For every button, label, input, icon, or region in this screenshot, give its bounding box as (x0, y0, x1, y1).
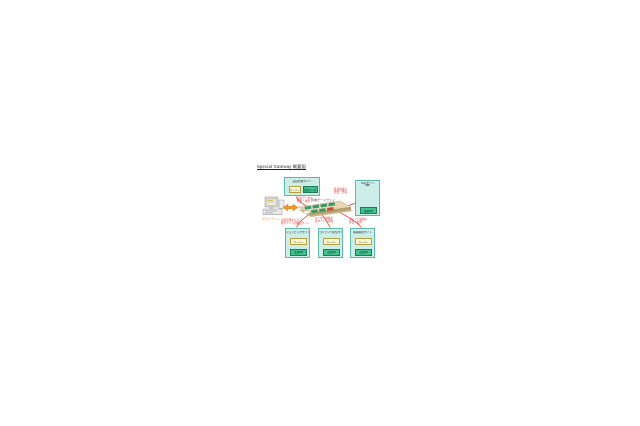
annotation-to-site2: ユーザー情報を 各サイトへ通知 (315, 217, 333, 223)
top-box-data: 認証データ (303, 186, 318, 193)
bottom-box-3-server: サーバー (355, 238, 372, 245)
bottom-box-1-title: ショッピングサイト (286, 231, 309, 234)
bottom-box-3-title: 情報提供サイト (351, 231, 374, 234)
client-pc-icon (263, 197, 284, 215)
db-box: SQLサーバ （DB） 顧客DB (355, 180, 380, 216)
bottom-box-3: 情報提供サイト サーバー 会員DB (350, 228, 375, 258)
bottom-box-2-title: コンテンツ配信サイト (319, 231, 342, 234)
gateway-label: 共通ゲートウェイ (311, 198, 335, 202)
db-box-data: 顧客DB (360, 207, 377, 214)
annotation-to-site3: ポイント情報の 照会・加算 (349, 218, 367, 224)
annotation-to-db: 会員情報の 照会・登録 (334, 188, 347, 194)
annotation-to-auth: 認証データの 照会・更新 (297, 197, 313, 203)
bottom-box-2-server: サーバー (323, 238, 340, 245)
diagram-canvas: Special Gateway 概要図 認証管理サイト サーバー 認証データ S… (0, 0, 640, 426)
client-label: クライアント (262, 217, 280, 221)
bottom-box-1-server: サーバー (290, 238, 307, 245)
bottom-box-1-data: 会員DB (290, 249, 307, 256)
db-box-subtitle: （DB） (356, 185, 379, 188)
top-box-server: サーバー (289, 186, 302, 193)
top-box-auth-site: 認証管理サイト サーバー 認証データ (284, 177, 320, 196)
top-box-title: 認証管理サイト (285, 180, 319, 183)
bottom-box-2: コンテンツ配信サイト サーバー 会員DB (318, 228, 343, 258)
client-gateway-arrow (283, 204, 298, 211)
bottom-box-1: ショッピングサイト サーバー 会員DB (285, 228, 310, 258)
diagram-artwork (0, 0, 640, 426)
page-title: Special Gateway 概要図 (257, 164, 306, 170)
bottom-box-2-data: 会員DB (323, 249, 340, 256)
annotation-to-site1: 認証結果をもとに 各サイトへ自動ログイン (281, 219, 310, 225)
bottom-box-3-data: 会員DB (355, 249, 372, 256)
